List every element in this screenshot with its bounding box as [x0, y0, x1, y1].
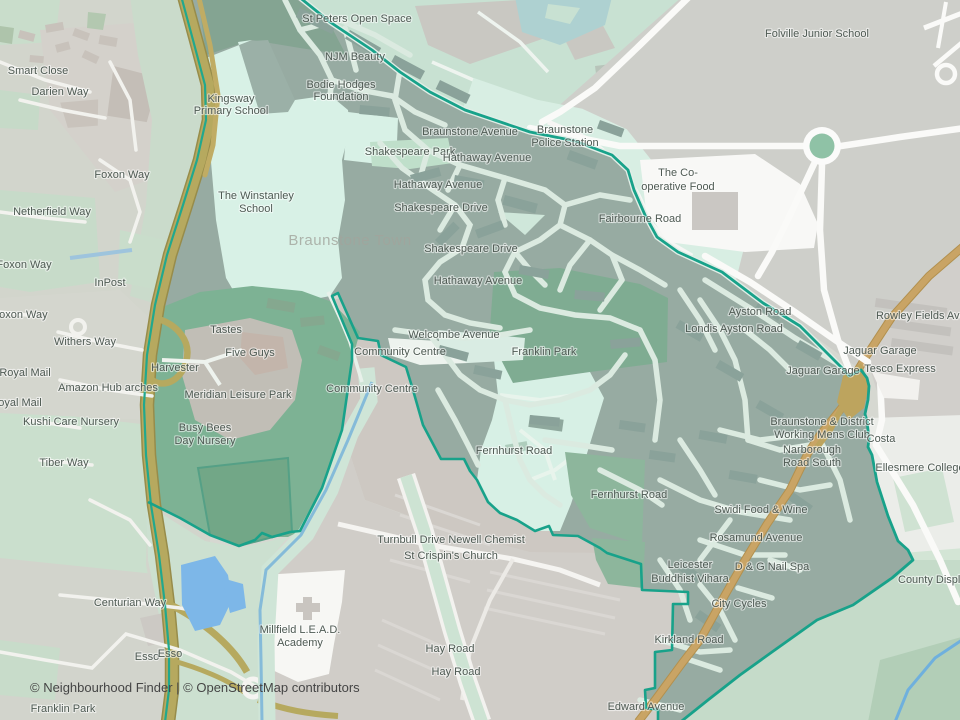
svg-text:Rowley Fields Avenue: Rowley Fields Avenue: [876, 310, 960, 322]
svg-text:Bodie Hodges: Bodie Hodges: [306, 79, 376, 91]
svg-text:Braunstone Town: Braunstone Town: [288, 232, 411, 249]
svg-text:Royal Mail: Royal Mail: [0, 397, 42, 409]
svg-text:InPost: InPost: [94, 277, 125, 289]
svg-text:The Winstanley: The Winstanley: [218, 190, 294, 202]
svg-text:Amazon Hub arches: Amazon Hub arches: [58, 382, 158, 394]
svg-text:Franklin Park: Franklin Park: [512, 346, 577, 358]
svg-text:Netherfield Way: Netherfield Way: [13, 206, 91, 218]
svg-text:Edward Avenue: Edward Avenue: [608, 701, 685, 713]
svg-text:Kingsway: Kingsway: [207, 93, 255, 105]
svg-text:D & G Nail Spa: D & G Nail Spa: [735, 561, 810, 573]
svg-text:Fernhurst Road: Fernhurst Road: [476, 445, 552, 457]
svg-text:Hathaway Avenue: Hathaway Avenue: [443, 152, 531, 164]
svg-text:Hay Road: Hay Road: [432, 666, 481, 678]
svg-text:Kushi Care Nursery: Kushi Care Nursery: [23, 416, 119, 428]
svg-text:Esso: Esso: [158, 648, 182, 660]
svg-text:Ayston Road: Ayston Road: [729, 306, 792, 318]
svg-text:Esso: Esso: [135, 651, 159, 663]
svg-text:Centurian Way: Centurian Way: [94, 597, 167, 609]
svg-text:Darien Way: Darien Way: [31, 86, 89, 98]
svg-text:Police Station: Police Station: [531, 137, 598, 149]
svg-text:Busy Bees: Busy Bees: [179, 422, 232, 434]
svg-text:Narborough: Narborough: [783, 444, 841, 456]
svg-text:Braunstone: Braunstone: [537, 124, 593, 136]
svg-text:Buddhist Vihara: Buddhist Vihara: [651, 573, 729, 585]
svg-text:© Neighbourhood Finder | © Ope: © Neighbourhood Finder | © OpenStreetMap…: [30, 680, 360, 695]
svg-text:City Cycles: City Cycles: [711, 598, 767, 610]
svg-text:Shakespeare Drive: Shakespeare Drive: [394, 202, 488, 214]
svg-text:Fairbourne Road: Fairbourne Road: [599, 213, 682, 225]
svg-text:Rosamund Avenue: Rosamund Avenue: [710, 532, 803, 544]
svg-text:Hathaway Avenue: Hathaway Avenue: [394, 179, 482, 191]
svg-text:Academy: Academy: [277, 637, 323, 649]
svg-text:Tastes: Tastes: [210, 324, 242, 336]
svg-text:Shakespeare Drive: Shakespeare Drive: [424, 243, 518, 255]
svg-text:St Crispin's Church: St Crispin's Church: [404, 550, 498, 562]
svg-text:Foxon Way: Foxon Way: [0, 309, 48, 321]
svg-text:Costa: Costa: [867, 433, 897, 445]
svg-text:Five Guys: Five Guys: [225, 347, 275, 359]
svg-text:Community Centre: Community Centre: [354, 346, 446, 358]
svg-text:Kirkland Road: Kirkland Road: [654, 634, 723, 646]
svg-text:Hay Road: Hay Road: [426, 643, 475, 655]
svg-text:Franklin Park: Franklin Park: [31, 703, 96, 715]
svg-text:Jaguar Garage: Jaguar Garage: [843, 345, 916, 357]
svg-text:School: School: [239, 203, 273, 215]
svg-text:Royal Mail: Royal Mail: [0, 367, 51, 379]
svg-text:Harvester: Harvester: [151, 362, 199, 374]
svg-text:Jaguar Garage: Jaguar Garage: [786, 365, 859, 377]
svg-text:Ellesmere College: Ellesmere College: [875, 462, 960, 474]
svg-text:Community Centre: Community Centre: [326, 383, 418, 395]
svg-text:Withers Way: Withers Way: [54, 336, 116, 348]
svg-text:Road South: Road South: [783, 457, 841, 469]
svg-text:Foxon Way: Foxon Way: [94, 169, 150, 181]
svg-text:Hathaway Avenue: Hathaway Avenue: [434, 275, 522, 287]
svg-text:St Peters Open Space: St Peters Open Space: [302, 13, 411, 25]
svg-text:The Co-: The Co-: [658, 167, 698, 179]
svg-text:Swidi Food & Wine: Swidi Food & Wine: [715, 504, 808, 516]
svg-text:Welcombe Avenue: Welcombe Avenue: [408, 329, 499, 341]
svg-text:Tesco Express: Tesco Express: [864, 363, 936, 375]
svg-text:operative Food: operative Food: [641, 181, 714, 193]
svg-text:Folville Junior School: Folville Junior School: [765, 28, 869, 40]
svg-text:Millfield L.E.A.D.: Millfield L.E.A.D.: [260, 624, 341, 636]
svg-text:Day Nursery: Day Nursery: [174, 435, 236, 447]
svg-text:County Display: County Display: [898, 574, 960, 586]
svg-text:Primary School: Primary School: [194, 105, 269, 117]
svg-text:Foxon Way: Foxon Way: [0, 259, 52, 271]
svg-text:Foundation: Foundation: [313, 91, 368, 103]
svg-text:Fernhurst Road: Fernhurst Road: [591, 489, 667, 501]
svg-text:Meridian Leisure Park: Meridian Leisure Park: [185, 389, 292, 401]
svg-text:Braunstone & District: Braunstone & District: [770, 416, 873, 428]
svg-text:Londis Ayston Road: Londis Ayston Road: [685, 323, 783, 335]
svg-text:Turnbull Drive Newell Chemist: Turnbull Drive Newell Chemist: [377, 534, 525, 546]
svg-text:Working Mens Club: Working Mens Club: [774, 429, 870, 441]
svg-text:Smart Close: Smart Close: [8, 65, 69, 77]
svg-text:Braunstone Avenue: Braunstone Avenue: [422, 126, 518, 138]
svg-text:Leicester: Leicester: [668, 559, 713, 571]
svg-text:Tiber Way: Tiber Way: [39, 457, 89, 469]
svg-text:NJM Beauty: NJM Beauty: [325, 51, 385, 63]
